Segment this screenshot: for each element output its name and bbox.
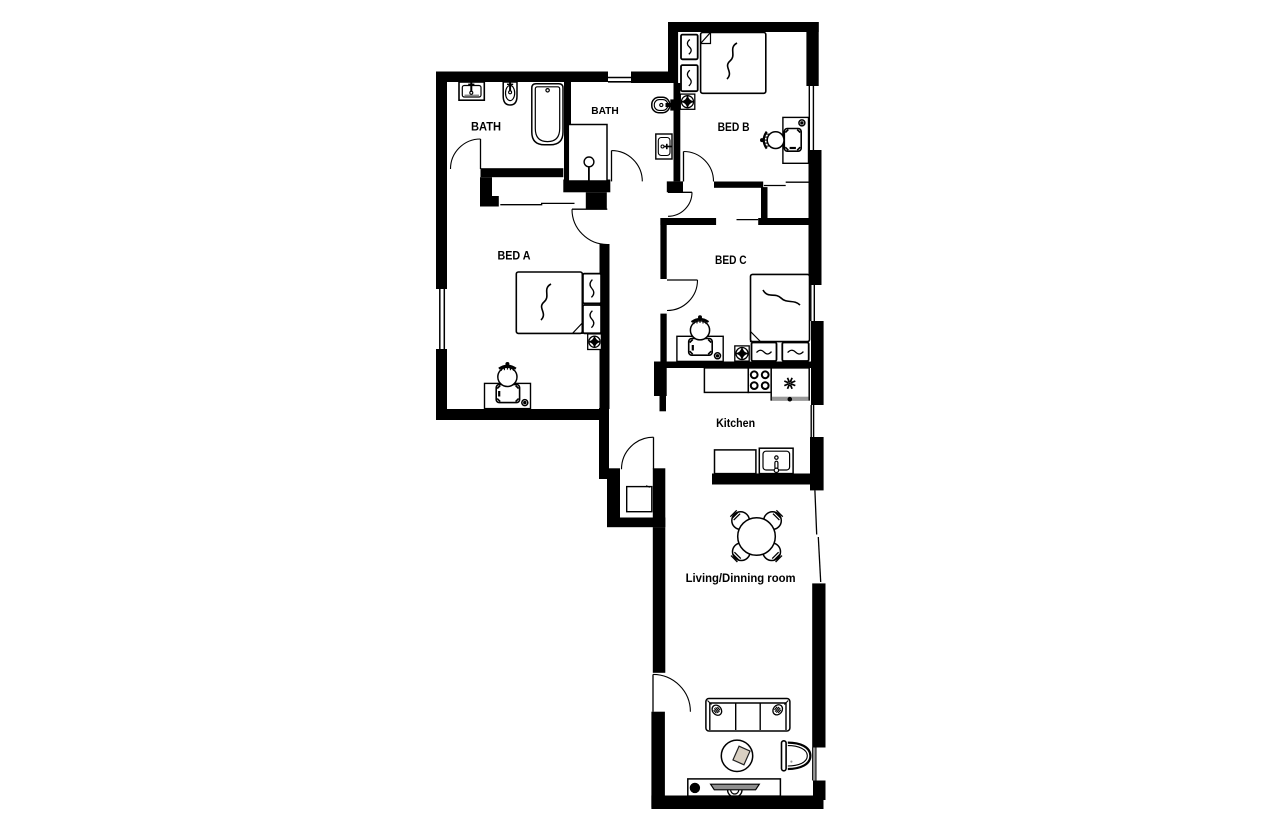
svg-text:BATH: BATH	[471, 120, 501, 134]
svg-text:BED B: BED B	[718, 120, 750, 134]
svg-text:Kitchen: Kitchen	[716, 416, 755, 430]
svg-text:BATH: BATH	[591, 106, 619, 117]
svg-text:BED A: BED A	[498, 248, 531, 262]
svg-text:BED C: BED C	[715, 253, 747, 267]
svg-text:Living/Dinning room: Living/Dinning room	[686, 571, 796, 585]
